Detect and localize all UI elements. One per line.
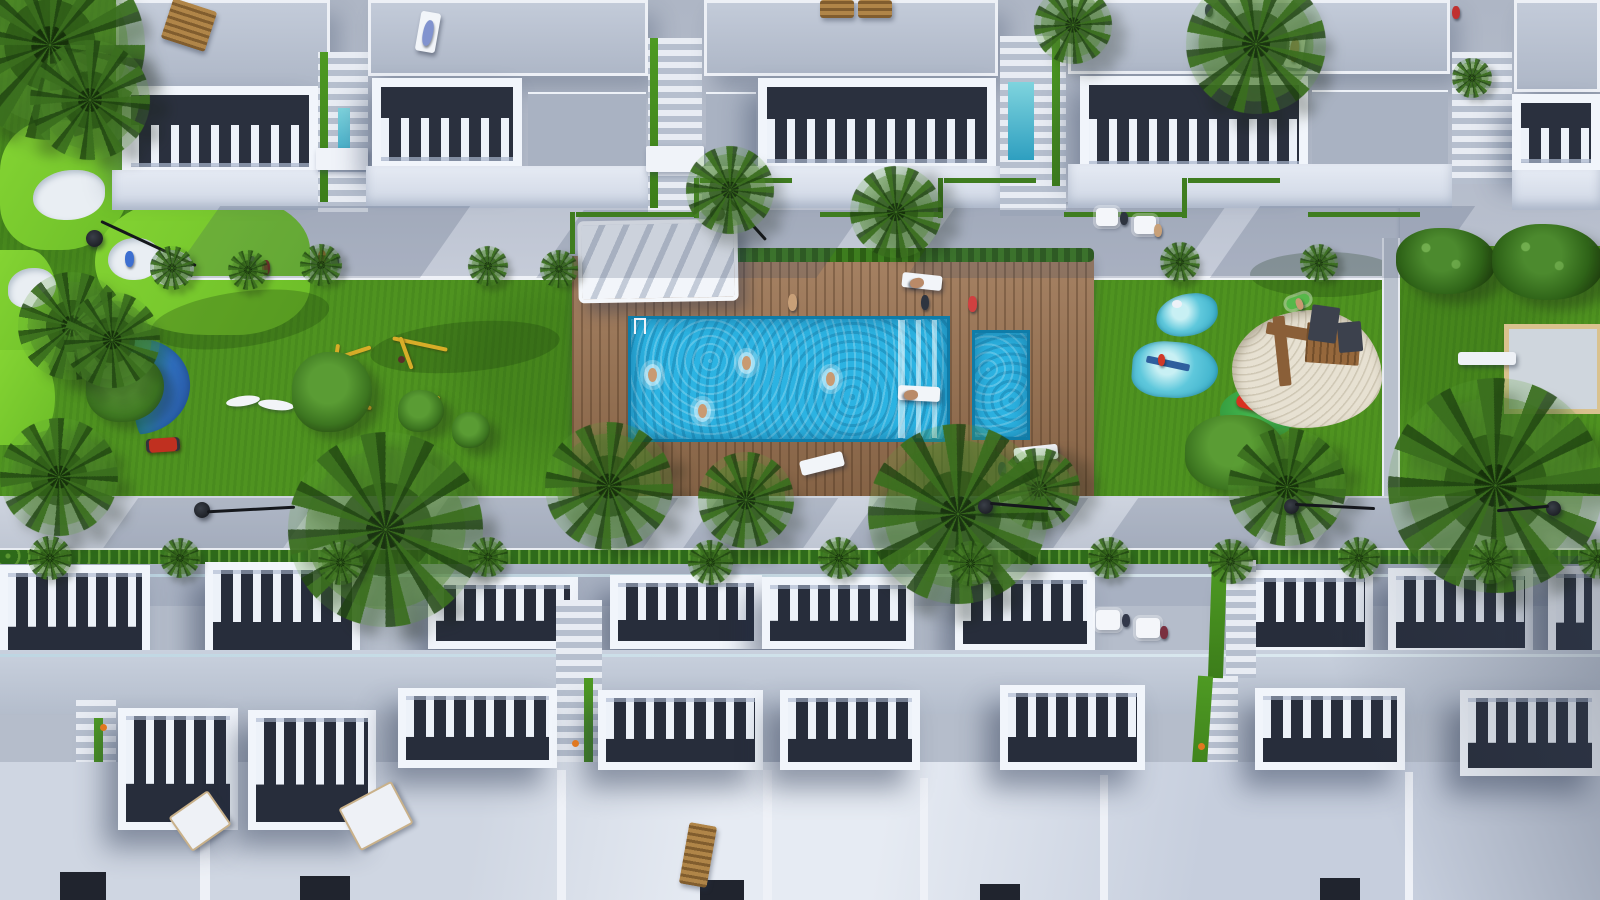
swimmer-1 xyxy=(742,356,751,370)
swimmer-2 xyxy=(826,372,835,386)
play-shade-panel-1 xyxy=(1308,304,1341,344)
toy-kart xyxy=(146,437,181,453)
balcony-C xyxy=(758,78,996,172)
person-deck-2 xyxy=(921,295,929,310)
pond-toy-white xyxy=(1172,300,1182,308)
garden-bench xyxy=(1458,352,1516,365)
gap3-waterfall xyxy=(1008,82,1034,160)
terrace-B xyxy=(528,92,646,172)
plaza-shrub-1 xyxy=(150,246,194,290)
palm-top-5 xyxy=(1452,58,1492,98)
balcony-front-4 xyxy=(598,690,763,770)
small-pool xyxy=(972,330,1030,440)
planter-dot-2 xyxy=(1198,743,1205,750)
balcony-front-3 xyxy=(398,688,557,768)
patio-table-2 xyxy=(1136,618,1160,638)
facade-A xyxy=(112,170,334,210)
facade-D xyxy=(1068,164,1452,208)
door-slot-4 xyxy=(980,884,1020,900)
person-topright-2 xyxy=(1452,6,1460,19)
wall-divider-4 xyxy=(920,778,928,900)
person-gym-2 xyxy=(398,356,405,363)
wood-lounger-roofC1 xyxy=(820,0,854,18)
patio-table-1 xyxy=(1096,610,1120,630)
gap1-green xyxy=(320,52,328,202)
roof-A xyxy=(116,0,330,90)
door-slot-1 xyxy=(60,872,106,900)
person-patio-2 xyxy=(1160,626,1168,639)
green-inlay-1 xyxy=(576,212,694,217)
tree-dark-1 xyxy=(1396,228,1496,294)
wall-divider-3 xyxy=(763,770,772,900)
hedge-palm-1 xyxy=(28,536,72,580)
person-pond-kid xyxy=(1158,354,1165,366)
person-deck-1 xyxy=(788,294,797,311)
swimmer-3 xyxy=(698,404,707,418)
roof-B xyxy=(368,0,648,76)
lamp-road-4 xyxy=(1546,501,1561,516)
person-terrace-2 xyxy=(1154,224,1162,237)
door-slot-2 xyxy=(300,876,350,900)
terrace-table-1 xyxy=(1096,208,1118,226)
planter-dot-3 xyxy=(100,724,107,731)
tree-dark-2 xyxy=(1492,224,1600,300)
pool-steps xyxy=(898,320,946,438)
gap2-green xyxy=(650,38,658,208)
pool-ladder xyxy=(634,318,646,334)
green-inlay-4 xyxy=(944,178,1036,183)
person-deck-red xyxy=(968,296,977,312)
facade-E xyxy=(1512,170,1600,210)
green-inlay-6 xyxy=(1188,178,1280,183)
aerial-render-scene xyxy=(0,0,1600,900)
swimmer-4 xyxy=(648,368,657,382)
roof-E xyxy=(1514,0,1600,92)
balcony-B xyxy=(372,78,522,170)
person-walking-blue xyxy=(125,251,134,267)
wall-divider-5 xyxy=(1100,775,1108,900)
lamp-road-3 xyxy=(1284,499,1299,514)
terrace-D xyxy=(1312,90,1448,172)
corner-shade xyxy=(1250,556,1600,900)
person-terrace-1 xyxy=(1120,212,1128,225)
green-inlay-10 xyxy=(1182,178,1187,218)
balcony-back-5 xyxy=(762,577,914,649)
green-inlay-7 xyxy=(1308,212,1420,217)
balcony-A xyxy=(122,86,318,176)
balcony-back-4 xyxy=(610,575,762,649)
balcony-front-6 xyxy=(1000,685,1145,770)
gap1-bridge xyxy=(316,148,368,170)
terrace-table-2 xyxy=(1134,216,1156,234)
play-shade-panel-2 xyxy=(1337,321,1364,353)
person-patio-1 xyxy=(1122,614,1130,627)
wall-divider-2 xyxy=(557,770,566,900)
lamp-courtyard-1 xyxy=(86,230,103,247)
planter-dot-1 xyxy=(572,740,579,747)
balcony-E xyxy=(1512,94,1600,172)
facade-B xyxy=(366,166,650,208)
wood-lounger-roofC2 xyxy=(858,0,892,18)
green-inlay-11 xyxy=(570,212,575,254)
balcony-front-5 xyxy=(780,690,920,770)
